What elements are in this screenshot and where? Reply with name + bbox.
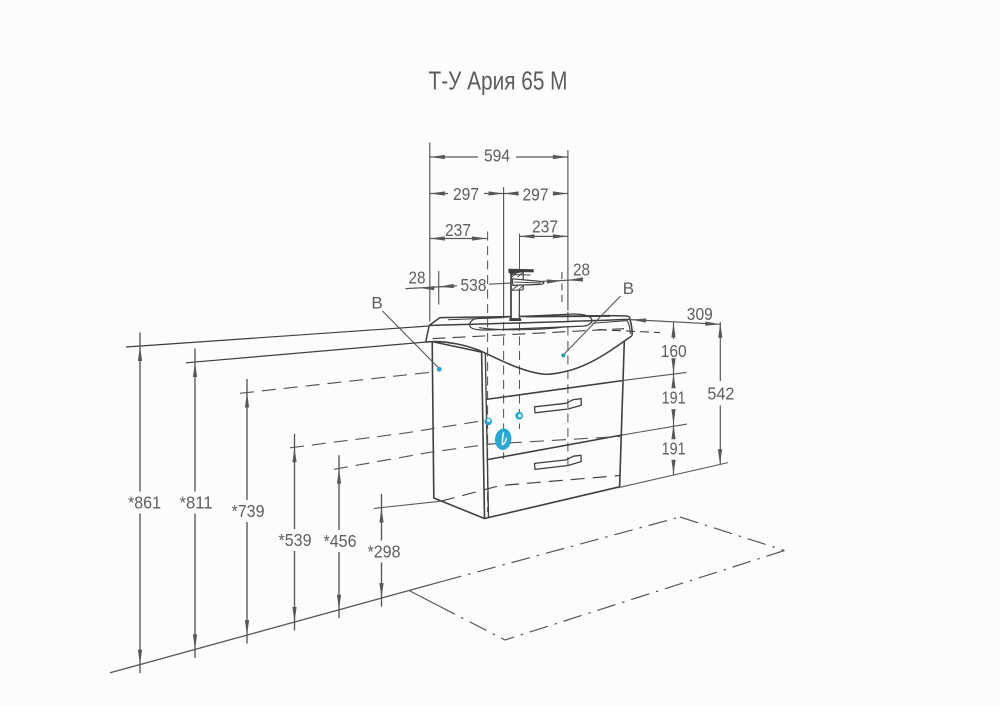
svg-text:В: В <box>371 294 382 313</box>
svg-text:594: 594 <box>484 146 510 166</box>
svg-text:*861: *861 <box>128 493 161 513</box>
svg-text:191: 191 <box>662 388 686 408</box>
svg-text:542: 542 <box>707 384 734 404</box>
svg-text:297: 297 <box>523 185 549 205</box>
svg-text:237: 237 <box>445 220 471 240</box>
svg-text:309: 309 <box>687 304 713 324</box>
svg-text:28: 28 <box>573 260 590 280</box>
svg-text:28: 28 <box>409 268 426 288</box>
svg-text:*539: *539 <box>279 530 312 550</box>
svg-text:Т-У Ария 65 М: Т-У Ария 65 М <box>429 66 568 96</box>
svg-text:*298: *298 <box>368 542 401 562</box>
svg-text:538: 538 <box>461 275 487 295</box>
svg-text:В: В <box>623 279 634 298</box>
svg-text:191: 191 <box>662 438 686 458</box>
svg-text:*456: *456 <box>324 531 357 551</box>
svg-text:297: 297 <box>453 184 479 204</box>
svg-text:*811: *811 <box>180 493 213 513</box>
svg-text:237: 237 <box>532 217 558 237</box>
svg-text:*739: *739 <box>232 501 265 521</box>
svg-text:160: 160 <box>661 341 687 361</box>
